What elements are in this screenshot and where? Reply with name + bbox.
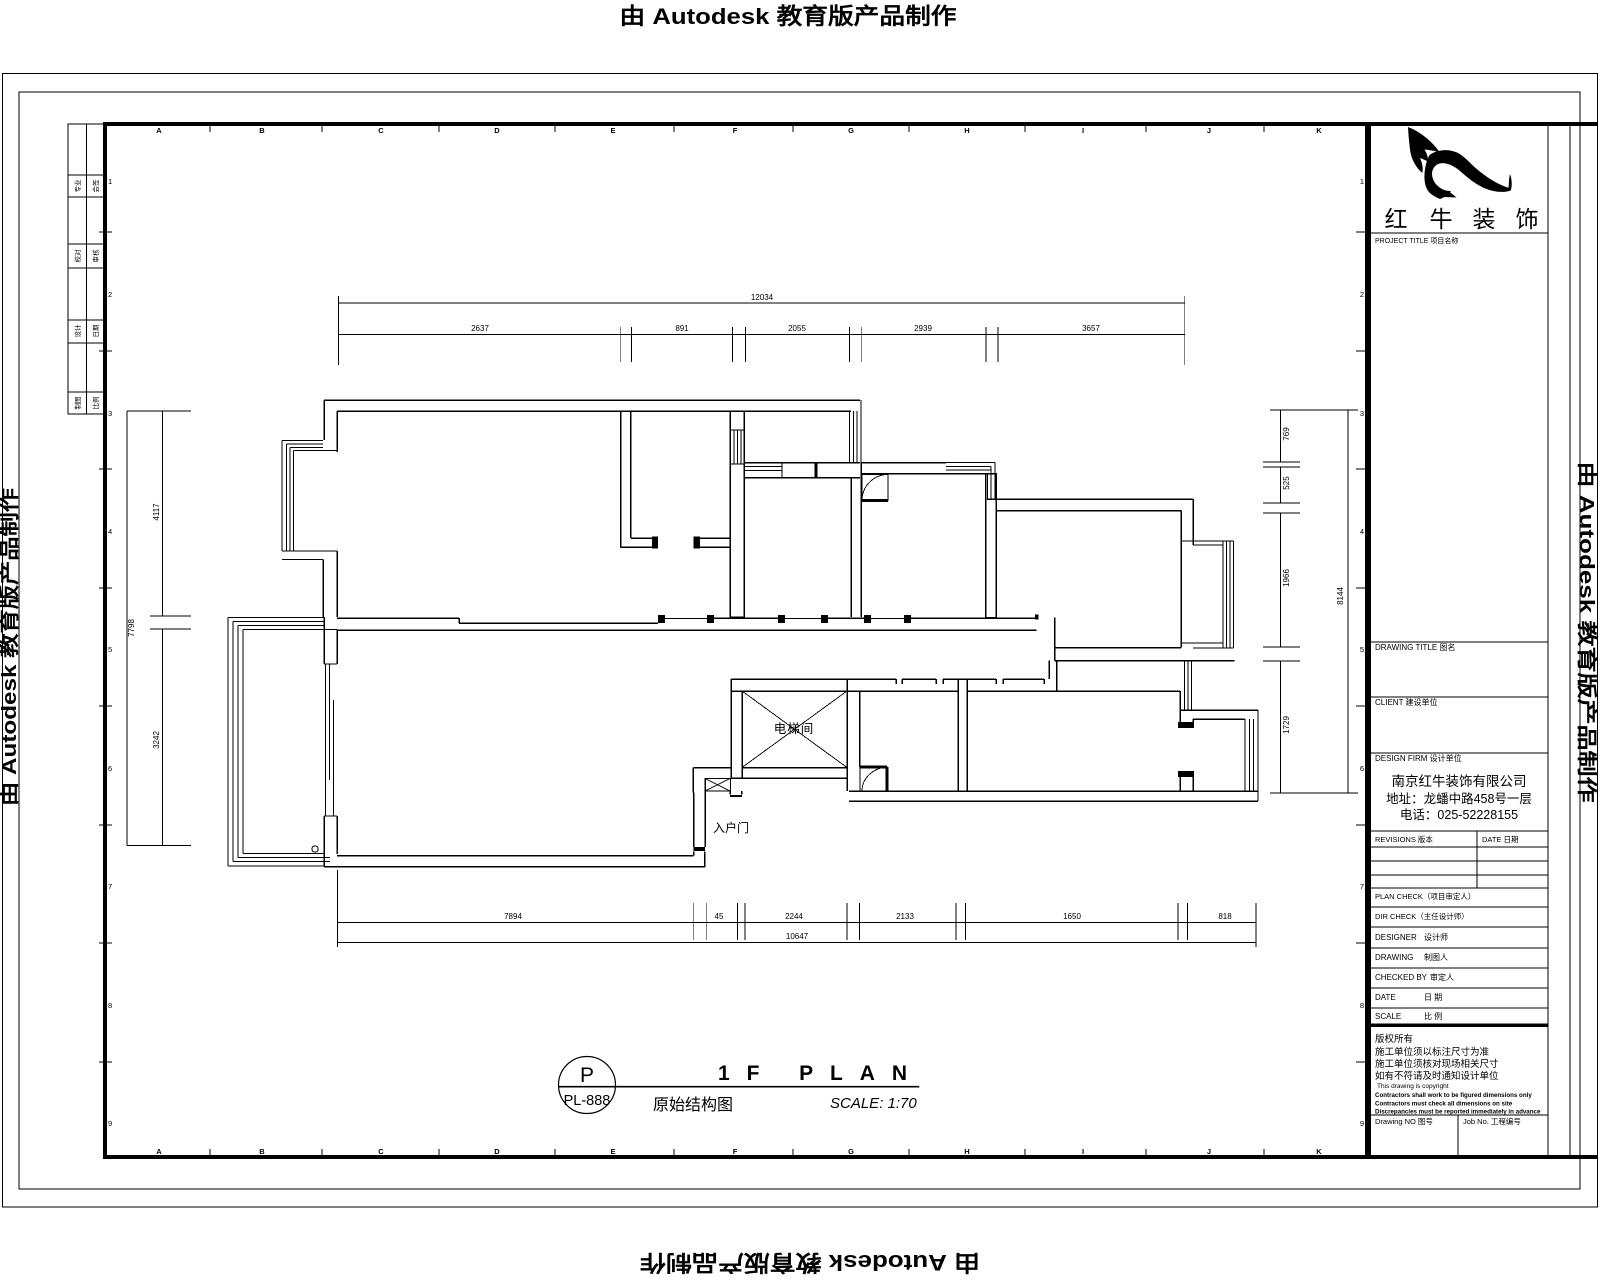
svg-text:H: H xyxy=(964,126,969,135)
svg-text:12034: 12034 xyxy=(751,293,774,302)
svg-text:REVISIONS 版本: REVISIONS 版本 xyxy=(1375,834,1433,844)
svg-text:CLIENT 建设单位: CLIENT 建设单位 xyxy=(1375,697,1438,707)
svg-text:设计师: 设计师 xyxy=(1424,932,1448,942)
svg-text:D: D xyxy=(494,1147,500,1156)
svg-text:1729: 1729 xyxy=(1282,716,1291,734)
svg-text:电话：025-52228155: 电话：025-52228155 xyxy=(1400,808,1518,822)
svg-text:比例: 比例 xyxy=(91,397,100,410)
svg-text:牛: 牛 xyxy=(1430,206,1453,232)
svg-text:B: B xyxy=(259,126,265,135)
svg-text:F: F xyxy=(733,1147,738,1156)
svg-text:饰: 饰 xyxy=(1516,206,1539,232)
svg-text:Contractors shall work to be f: Contractors shall work to be figured dim… xyxy=(1375,1092,1532,1099)
svg-text:4: 4 xyxy=(1360,527,1364,536)
svg-text:9: 9 xyxy=(108,1119,112,1128)
svg-text:2055: 2055 xyxy=(788,324,806,333)
svg-text:C: C xyxy=(378,126,384,135)
svg-text:7: 7 xyxy=(1360,882,1364,891)
svg-text:红: 红 xyxy=(1385,206,1408,232)
svg-text:K: K xyxy=(1316,126,1322,135)
svg-text:A: A xyxy=(156,1147,162,1156)
svg-text:设计: 设计 xyxy=(73,324,82,338)
svg-text:1: 1 xyxy=(1360,177,1364,186)
svg-text:DRAWING: DRAWING xyxy=(1375,953,1413,962)
svg-text:DATE: DATE xyxy=(1375,993,1396,1002)
svg-text:D: D xyxy=(494,126,500,135)
svg-text:由 Autodesk 教育版产品制作: 由 Autodesk 教育版产品制作 xyxy=(640,1250,980,1275)
svg-text:6: 6 xyxy=(108,764,112,773)
svg-text:7894: 7894 xyxy=(504,912,522,921)
svg-text:装: 装 xyxy=(1473,206,1496,232)
svg-text:Discrepancies must be reported: Discrepancies must be reported immediate… xyxy=(1375,1109,1541,1116)
svg-text:3: 3 xyxy=(1360,409,1364,418)
svg-text:日期: 日期 xyxy=(92,324,100,338)
svg-text:J: J xyxy=(1207,1147,1211,1156)
svg-text:Job No. 工程编号: Job No. 工程编号 xyxy=(1463,1116,1521,1126)
svg-text:SCALE: SCALE xyxy=(1375,1012,1401,1021)
svg-text:校对: 校对 xyxy=(73,249,82,263)
svg-text:6: 6 xyxy=(1360,764,1364,773)
svg-text:A: A xyxy=(156,126,162,135)
svg-text:E: E xyxy=(610,1147,615,1156)
svg-text:E: E xyxy=(610,126,615,135)
svg-text:地址：龙蟠中路458号一层: 地址：龙蟠中路458号一层 xyxy=(1386,791,1532,806)
svg-text:3: 3 xyxy=(108,409,112,418)
svg-text:Drawing NO 图号: Drawing NO 图号 xyxy=(1375,1117,1433,1126)
svg-text:SCALE: 1:70: SCALE: 1:70 xyxy=(830,1095,917,1112)
svg-text:由 Autodesk 教育版产品制作: 由 Autodesk 教育版产品制作 xyxy=(1575,462,1599,803)
svg-text:7: 7 xyxy=(108,882,112,891)
svg-text:G: G xyxy=(848,126,854,135)
svg-text:比 例: 比 例 xyxy=(1424,1011,1442,1021)
svg-text:8: 8 xyxy=(1360,1001,1364,1010)
svg-text:F: F xyxy=(733,126,738,135)
svg-text:5: 5 xyxy=(108,645,112,654)
svg-text:B: B xyxy=(259,1147,265,1156)
svg-text:PROJECT TITLE 项目名称: PROJECT TITLE 项目名称 xyxy=(1375,236,1458,245)
svg-text:专业: 专业 xyxy=(73,179,82,193)
svg-text:DATE 日期: DATE 日期 xyxy=(1482,835,1519,844)
svg-text:施工单位须核对现场相关尺寸: 施工单位须核对现场相关尺寸 xyxy=(1375,1058,1499,1070)
svg-text:施工单位须以标注尺寸为准: 施工单位须以标注尺寸为准 xyxy=(1375,1046,1490,1058)
svg-text:891: 891 xyxy=(675,324,689,333)
svg-text:原始结构图: 原始结构图 xyxy=(653,1096,733,1114)
svg-text:DRAWING TITLE 图名: DRAWING TITLE 图名 xyxy=(1375,642,1455,652)
svg-text:由 Autodesk 教育版产品制作: 由 Autodesk 教育版产品制作 xyxy=(0,488,21,806)
svg-text:DIR CHECK（主任设计师）: DIR CHECK（主任设计师） xyxy=(1375,911,1469,921)
svg-text:3657: 3657 xyxy=(1082,324,1100,333)
svg-text:J: J xyxy=(1207,126,1211,135)
svg-text:审定人: 审定人 xyxy=(1430,972,1454,982)
svg-text:审核: 审核 xyxy=(91,249,100,263)
svg-text:818: 818 xyxy=(1218,912,1232,921)
svg-text:PLAN CHECK（项目审定人）: PLAN CHECK（项目审定人） xyxy=(1375,891,1475,901)
svg-text:C: C xyxy=(378,1147,384,1156)
svg-text:由 Autodesk 教育版产品制作: 由 Autodesk 教育版产品制作 xyxy=(620,3,958,29)
svg-text:会签: 会签 xyxy=(91,179,100,193)
svg-text:CHECKED BY: CHECKED BY xyxy=(1375,973,1428,982)
svg-text:769: 769 xyxy=(1282,427,1291,441)
svg-text:3242: 3242 xyxy=(152,731,161,749)
svg-text:H: H xyxy=(964,1147,969,1156)
svg-text:1: 1 xyxy=(108,177,112,186)
svg-text:This drawing is copyright: This drawing is copyright xyxy=(1377,1083,1449,1090)
svg-text:525: 525 xyxy=(1282,476,1291,490)
svg-text:9: 9 xyxy=(1360,1119,1364,1128)
svg-text:1650: 1650 xyxy=(1063,912,1081,921)
svg-text:入户门: 入户门 xyxy=(713,820,749,835)
svg-text:8: 8 xyxy=(108,1001,112,1010)
svg-text:4117: 4117 xyxy=(152,503,161,521)
svg-text:南京红牛装饰有限公司: 南京红牛装饰有限公司 xyxy=(1392,774,1527,789)
svg-text:K: K xyxy=(1316,1147,1322,1156)
svg-text:8144: 8144 xyxy=(1336,587,1345,605)
svg-text:1966: 1966 xyxy=(1282,569,1291,587)
svg-text:日 期: 日 期 xyxy=(1424,993,1442,1002)
svg-text:制图: 制图 xyxy=(73,397,82,410)
svg-text:DESIGN FIRM 设计单位: DESIGN FIRM 设计单位 xyxy=(1375,753,1462,763)
svg-text:2244: 2244 xyxy=(785,912,803,921)
svg-text:2: 2 xyxy=(108,290,112,299)
svg-text:制图人: 制图人 xyxy=(1424,952,1448,962)
svg-text:2637: 2637 xyxy=(471,324,489,333)
svg-text:G: G xyxy=(848,1147,854,1156)
svg-text:I: I xyxy=(1082,1147,1084,1156)
svg-text:45: 45 xyxy=(715,912,724,921)
svg-text:I: I xyxy=(1082,126,1084,135)
svg-text:2: 2 xyxy=(1360,290,1364,299)
svg-text:如有不符请及时通知设计单位: 如有不符请及时通知设计单位 xyxy=(1375,1070,1499,1082)
svg-text:PL-888: PL-888 xyxy=(564,1093,611,1109)
svg-text:P: P xyxy=(580,1064,594,1087)
svg-text:2939: 2939 xyxy=(914,324,932,333)
svg-text:10647: 10647 xyxy=(786,932,809,941)
svg-text:版权所有: 版权所有 xyxy=(1375,1033,1413,1045)
svg-text:4: 4 xyxy=(108,527,112,536)
svg-text:DESIGNER: DESIGNER xyxy=(1375,933,1417,942)
svg-text:5: 5 xyxy=(1360,645,1364,654)
svg-text:2133: 2133 xyxy=(896,912,914,921)
svg-text:7798: 7798 xyxy=(127,619,136,637)
svg-text:Contractors must check all dim: Contractors must check all dimensions on… xyxy=(1375,1101,1513,1108)
svg-text:电梯间: 电梯间 xyxy=(774,722,815,736)
